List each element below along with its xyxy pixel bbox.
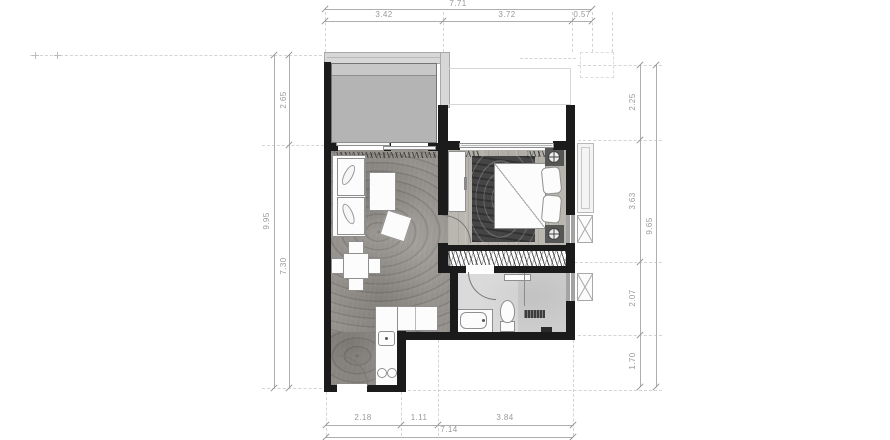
bed-pillow [541,194,562,224]
dim-right-seg4: 1.70 [629,352,637,369]
bedroom-window-line [461,145,552,146]
dining-chair [348,241,364,254]
dim-top-seg1: 3.42 [375,11,392,19]
wall-bath-west [450,272,458,332]
floor-plan: 7.71 3.42 3.72 0.57 9.95 2.65 7.30 2.25 … [0,0,890,440]
shower-floor [518,272,566,332]
dim-line-left-overall [274,55,275,388]
dim-right-seg1: 2.25 [629,93,637,110]
dim-line-right-segments [640,65,641,387]
extension-line [262,145,324,146]
extension-line [578,335,662,336]
wall-divider-upper [438,150,448,215]
dim-left-seg1: 2.65 [280,91,288,108]
dim-top-overall: 7.71 [449,0,466,8]
sliding-door-panel [336,142,390,146]
wall-window-cap-east [553,141,575,150]
wall-left [324,62,331,392]
extension-line [520,58,576,59]
dim-top-seg3: 0.57 [573,11,590,19]
dim-right-overall: 9.65 [646,217,654,234]
extension-line [408,390,662,391]
bed-pillow [541,166,563,195]
dim-line-left-segments [289,55,290,388]
dim-line-top-overall [325,9,592,10]
extension-line [578,140,662,141]
terrace-pool [331,63,437,143]
shower-glass [524,272,525,306]
bed [494,163,546,229]
faucet [385,337,388,340]
extension-line [612,12,613,52]
cross-mark [35,52,36,59]
dim-left-seg2: 7.30 [280,257,288,274]
wardrobe-handle [464,177,467,190]
dim-bottom-seg3: 3.84 [496,414,513,422]
cross-mark [57,52,58,59]
shower-niche [504,274,531,281]
sliding-door-panel [383,146,436,150]
extension-line [401,392,402,436]
cooktop-burner [377,368,387,378]
planter-ledge [577,143,594,213]
wall-closet-north [443,245,566,251]
extension-line [30,55,322,56]
extension-line [578,65,662,66]
dim-top-seg2: 3.72 [498,11,515,19]
planter-inner [581,147,590,209]
coffee-table [369,172,396,211]
extension-line [326,392,327,436]
extension-line [575,262,662,263]
dim-line-top-segments [325,21,592,22]
dim-right-seg2: 3.63 [629,192,637,209]
ac-unit-icon [577,273,593,301]
dim-line-bottom-overall [326,437,573,438]
dining-chair [368,258,381,274]
window-right-1-glass [570,215,571,243]
terrace-parapet-line [327,57,448,58]
dim-right-seg3: 2.07 [629,289,637,306]
wall-step [397,331,406,392]
dim-left-overall: 9.95 [263,212,271,229]
basin-faucet [482,319,485,322]
shower-drain [524,310,545,318]
roof-slab-outline [447,68,571,105]
dining-chair [348,278,364,291]
toilet-bowl [500,300,515,323]
dining-chair [331,258,344,274]
pool-step [332,64,436,76]
ac-unit-icon [577,215,593,243]
wall-bath-north [443,266,566,273]
dining-table [343,253,369,279]
fridge-divider [415,307,416,330]
dim-bottom-seg2: 1.11 [411,414,428,422]
dim-line-right-overall [656,65,657,387]
dim-bottom-seg1: 2.18 [354,414,371,422]
dim-bottom-overall: 7.14 [440,426,457,434]
window-right-2-glass [570,273,571,301]
lamp-icon [547,227,561,241]
cooktop-burner [387,368,397,378]
wall-south [397,332,575,340]
lamp-icon [547,150,561,164]
